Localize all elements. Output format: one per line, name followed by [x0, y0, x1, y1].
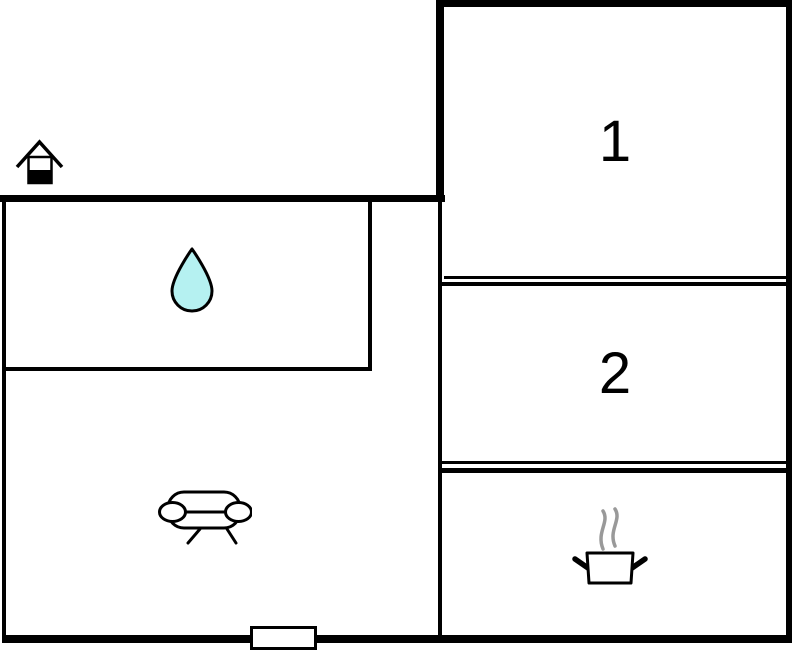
floor-plan: 1 2: [0, 0, 793, 652]
wall-bathroom-right: [368, 202, 372, 371]
room-1-label: 1: [599, 113, 631, 171]
door-opening: [250, 626, 317, 650]
wall-right-section-left: [436, 0, 444, 202]
steam-line: [613, 509, 617, 546]
wall-left-section-top: [0, 195, 445, 202]
entrance-house-icon: [15, 139, 65, 187]
sofa-icon: [156, 488, 252, 546]
water-drop-shape: [172, 249, 212, 311]
wall-kitchen-top: [438, 468, 790, 473]
wall-bottom: [2, 635, 792, 643]
wall-room1-bottom: [444, 276, 786, 279]
room-2-label: 2: [599, 345, 631, 403]
wall-left: [2, 195, 6, 643]
wall-room2-bottom: [440, 461, 788, 464]
wall-top-right: [436, 0, 792, 7]
water-drop-icon: [167, 246, 217, 314]
room-2: 2: [442, 286, 788, 461]
wall-bathroom-bottom: [2, 367, 372, 371]
cooking-pot-icon: [570, 500, 650, 595]
steam-line: [601, 511, 605, 549]
room-1: 1: [444, 7, 786, 276]
